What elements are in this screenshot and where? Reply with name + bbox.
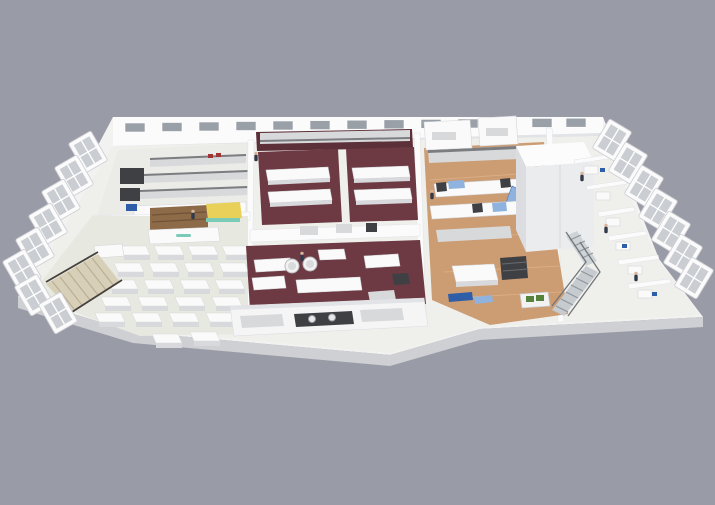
window (162, 123, 182, 132)
kitchen-equipment (364, 254, 400, 268)
hot-kitchen-upper (256, 129, 418, 235)
person-figure (300, 252, 303, 261)
kiosk-logo (176, 234, 191, 237)
corridor-appliance (300, 226, 318, 235)
dining-table (144, 280, 174, 294)
window (532, 118, 552, 127)
conveyor-blue-unit (448, 180, 465, 189)
prep-island (352, 166, 410, 179)
dining-table (149, 263, 179, 277)
dining-table (132, 313, 162, 327)
kiosk-teal-trim (206, 218, 240, 222)
corridor-appliance (366, 223, 377, 232)
window (125, 123, 145, 132)
conveyor-blue-unit (492, 202, 507, 212)
conveyor-motor (472, 203, 483, 213)
steam-kettle-lid (288, 262, 296, 270)
person-figure (430, 190, 433, 199)
lab-desk (638, 290, 652, 298)
stored-red-item (216, 153, 221, 157)
kitchen-room-b-floor (346, 147, 418, 222)
dining-table (188, 246, 218, 260)
corridor-appliance (336, 224, 352, 233)
lab-desk (596, 192, 610, 200)
person-figure (254, 152, 257, 161)
window (199, 122, 219, 131)
window (384, 120, 404, 129)
window (273, 121, 293, 130)
produce-green-crate (536, 295, 544, 301)
kiosk-canopy (206, 202, 242, 220)
window (236, 122, 256, 131)
kitchen-equipment (318, 249, 346, 260)
window (566, 118, 586, 127)
stove-burner (329, 314, 336, 321)
shelf-rack-dark (500, 256, 528, 280)
dining-table (114, 263, 144, 277)
apron-table (152, 334, 182, 348)
lab-equipment-blue (622, 244, 627, 248)
back-room-machine (486, 128, 508, 136)
dining-table (175, 297, 205, 311)
refrigerator-unit (120, 188, 140, 201)
kitchen-equipment (252, 276, 286, 290)
dining-table (154, 246, 184, 260)
refrigerator-unit (120, 168, 144, 184)
person-figure (634, 272, 637, 281)
person-figure (580, 172, 583, 181)
stored-red-item (208, 154, 213, 158)
produce-green-crate (526, 296, 534, 302)
facility-isometric-render (0, 0, 715, 505)
fryer-unit (392, 273, 410, 285)
lab-equipment-blue (652, 292, 657, 296)
apron-table (190, 332, 220, 346)
kitchen-island (296, 277, 362, 293)
conveyor-motor (436, 182, 447, 192)
dining-table (101, 297, 131, 311)
dining-table (120, 246, 150, 260)
conveyor-motor (500, 178, 511, 188)
lab-desk (584, 166, 598, 174)
steam-kettle-lid (306, 260, 314, 268)
back-room-machine (432, 132, 456, 140)
window (310, 121, 330, 130)
wall-sign (126, 204, 137, 211)
dining-table (95, 313, 125, 327)
building (2, 116, 714, 366)
dining-table (215, 280, 245, 294)
counter-appliance (360, 308, 404, 322)
lab-equipment-blue (600, 168, 605, 172)
window (347, 120, 367, 129)
dining-table (219, 263, 249, 277)
prep-island (354, 188, 412, 201)
dining-table (138, 297, 168, 311)
dining-table (184, 263, 214, 277)
produce-cart (520, 292, 550, 308)
work-table (452, 264, 498, 282)
stove-burner (309, 316, 316, 323)
dining-table (169, 313, 199, 327)
counter-appliance (240, 314, 284, 328)
person-figure (604, 224, 607, 233)
kitchen-room-a-floor (258, 149, 342, 225)
lab-desk (606, 218, 620, 226)
person-figure (191, 210, 194, 219)
dining-table (180, 280, 210, 294)
render-canvas (0, 0, 715, 505)
